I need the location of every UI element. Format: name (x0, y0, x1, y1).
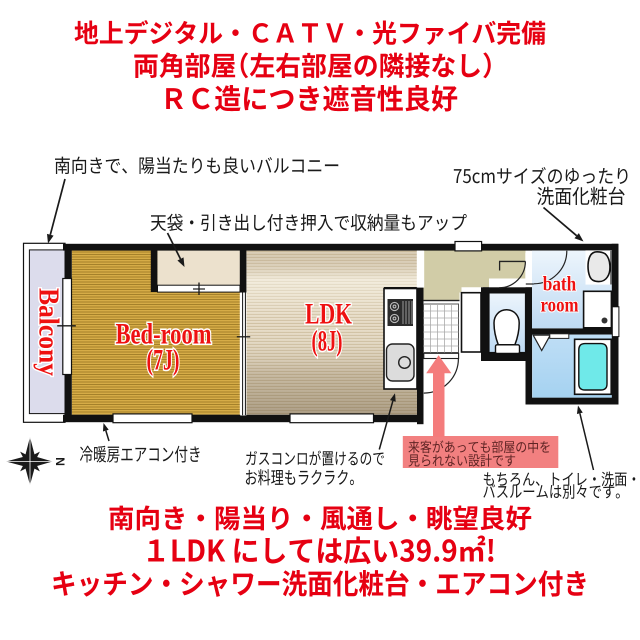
svg-text:(7J): (7J) (147, 344, 180, 377)
svg-text:N: N (53, 457, 67, 466)
svg-text:room: room (541, 293, 579, 317)
svg-text:Balcony: Balcony (33, 288, 64, 376)
svg-text:(8J): (8J) (312, 325, 343, 358)
